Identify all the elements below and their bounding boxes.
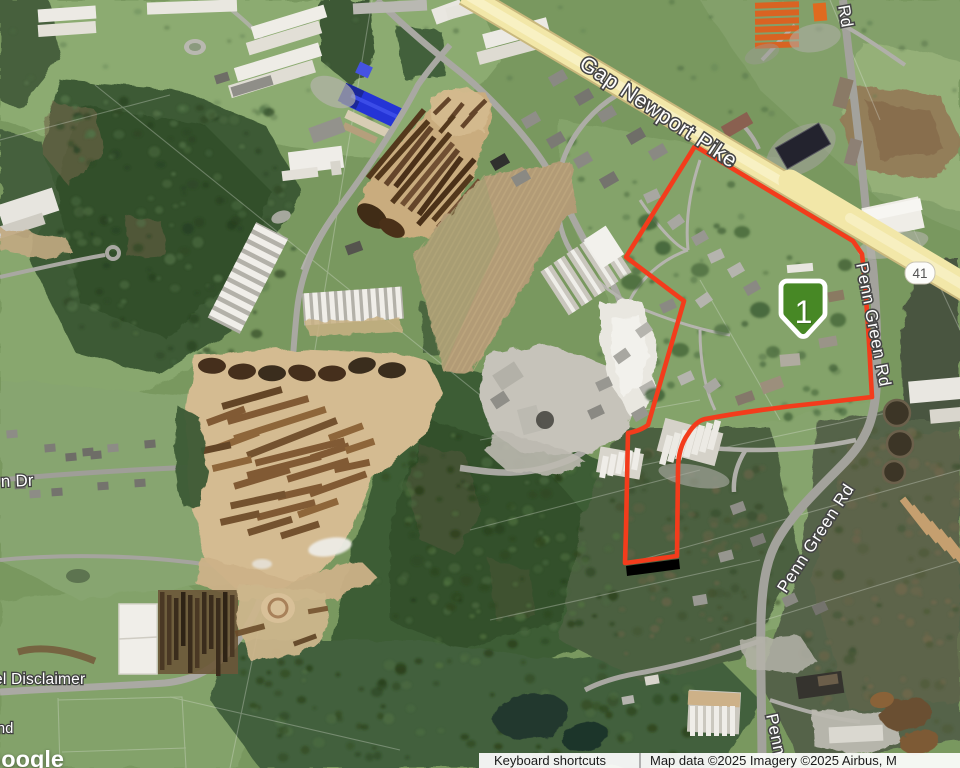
- svg-text:Rd: Rd: [834, 3, 857, 29]
- svg-text:Google: Google: [0, 746, 64, 768]
- svg-text:41: 41: [912, 266, 927, 281]
- svg-text:Map data ©2025 Imagery ©2025: Map data ©2025 Imagery ©2025 Airbus, M: [650, 753, 897, 768]
- svg-text:Keyboard shortcuts: Keyboard shortcuts: [494, 753, 607, 768]
- svg-text:el Disclaimer: el Disclaimer: [0, 671, 85, 688]
- svg-text:n Dr: n Dr: [0, 471, 34, 491]
- svg-text:nd: nd: [0, 721, 14, 737]
- svg-text:1: 1: [795, 294, 813, 330]
